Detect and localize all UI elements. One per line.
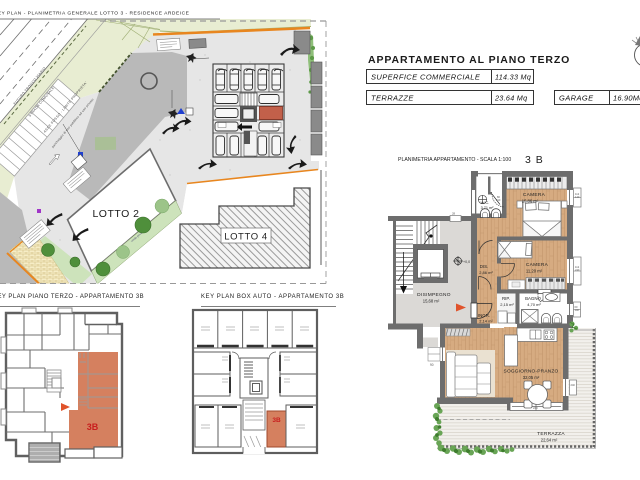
svg-text:4,70 m²: 4,70 m²	[527, 302, 541, 307]
svg-text:114.33 Mq: 114.33 Mq	[495, 73, 531, 82]
svg-text:2,86 m²: 2,86 m²	[479, 270, 493, 275]
svg-text:RIP.: RIP.	[502, 296, 510, 301]
svg-text:KEY PLAN - PLANIMETRIA GENERA: KEY PLAN - PLANIMETRIA GENERALE LOTTO 3 …	[0, 11, 190, 17]
svg-text:BAGNO: BAGNO	[525, 296, 541, 301]
svg-text:240: 240	[571, 383, 576, 387]
svg-text:SUPERFICE COMMERCIALE: SUPERFICE COMMERCIALE	[371, 73, 481, 82]
svg-text:KEY PLAN PIANO TERZO - APPARTA: KEY PLAN PIANO TERZO - APPARTAMENTO 3B	[0, 294, 144, 300]
svg-text:140: 140	[575, 195, 580, 199]
svg-text:240: 240	[533, 406, 538, 410]
svg-text:+0,0: +0,0	[463, 260, 470, 264]
svg-text:2,14 m²: 2,14 m²	[479, 319, 493, 324]
svg-text:KEY PLAN BOX AUTO - APPARTAMEN: KEY PLAN BOX AUTO - APPARTAMENTO 3B	[201, 294, 344, 300]
svg-text:22,64 m²: 22,64 m²	[541, 438, 558, 443]
svg-text:210: 210	[496, 198, 501, 202]
svg-text:15,86 m²: 15,86 m²	[522, 199, 539, 204]
svg-text:32,05 m²: 32,05 m²	[523, 375, 540, 380]
svg-text:DISIMPEGNO: DISIMPEGNO	[417, 292, 451, 298]
svg-text:CAMERA: CAMERA	[526, 262, 549, 268]
svg-text:TERRAZZA: TERRAZZA	[537, 431, 565, 437]
svg-text:APPARTAMENTO AL PIANO TERZO: APPARTAMENTO AL PIANO TERZO	[368, 54, 570, 66]
svg-text:240: 240	[575, 268, 580, 272]
svg-text:15,68 m²: 15,68 m²	[423, 299, 440, 304]
svg-text:3,71 m²: 3,71 m²	[481, 206, 495, 210]
svg-text:23.64 Mq: 23.64 Mq	[494, 94, 527, 103]
svg-text:16.90Mq: 16.90Mq	[613, 94, 640, 103]
svg-text:LOTTO 2: LOTTO 2	[92, 208, 139, 220]
svg-text:3 B: 3 B	[525, 154, 544, 166]
svg-text:W.C.: W.C.	[481, 200, 490, 205]
svg-text:DIS.: DIS.	[480, 264, 489, 269]
svg-text:140: 140	[575, 308, 580, 312]
svg-text:3B: 3B	[272, 417, 281, 424]
svg-text:GARAGE: GARAGE	[559, 94, 594, 103]
svg-text:CAMERA: CAMERA	[523, 192, 546, 198]
svg-text:90: 90	[430, 363, 434, 367]
svg-text:3B: 3B	[87, 422, 99, 432]
svg-text:2,15 m²: 2,15 m²	[500, 302, 514, 307]
svg-text:SOGGIORNO-PRANZO: SOGGIORNO-PRANZO	[504, 369, 559, 375]
svg-text:11,20 m²: 11,20 m²	[526, 269, 543, 274]
svg-text:INGR.: INGR.	[478, 313, 490, 318]
svg-text:TERRAZZE: TERRAZZE	[371, 94, 414, 103]
svg-text:PLANIMETRIA APPARTAMENTO - S: PLANIMETRIA APPARTAMENTO - SCALA 1:100	[398, 157, 511, 163]
svg-text:LOTTO 4: LOTTO 4	[224, 232, 268, 243]
svg-text:28: 28	[452, 212, 456, 216]
